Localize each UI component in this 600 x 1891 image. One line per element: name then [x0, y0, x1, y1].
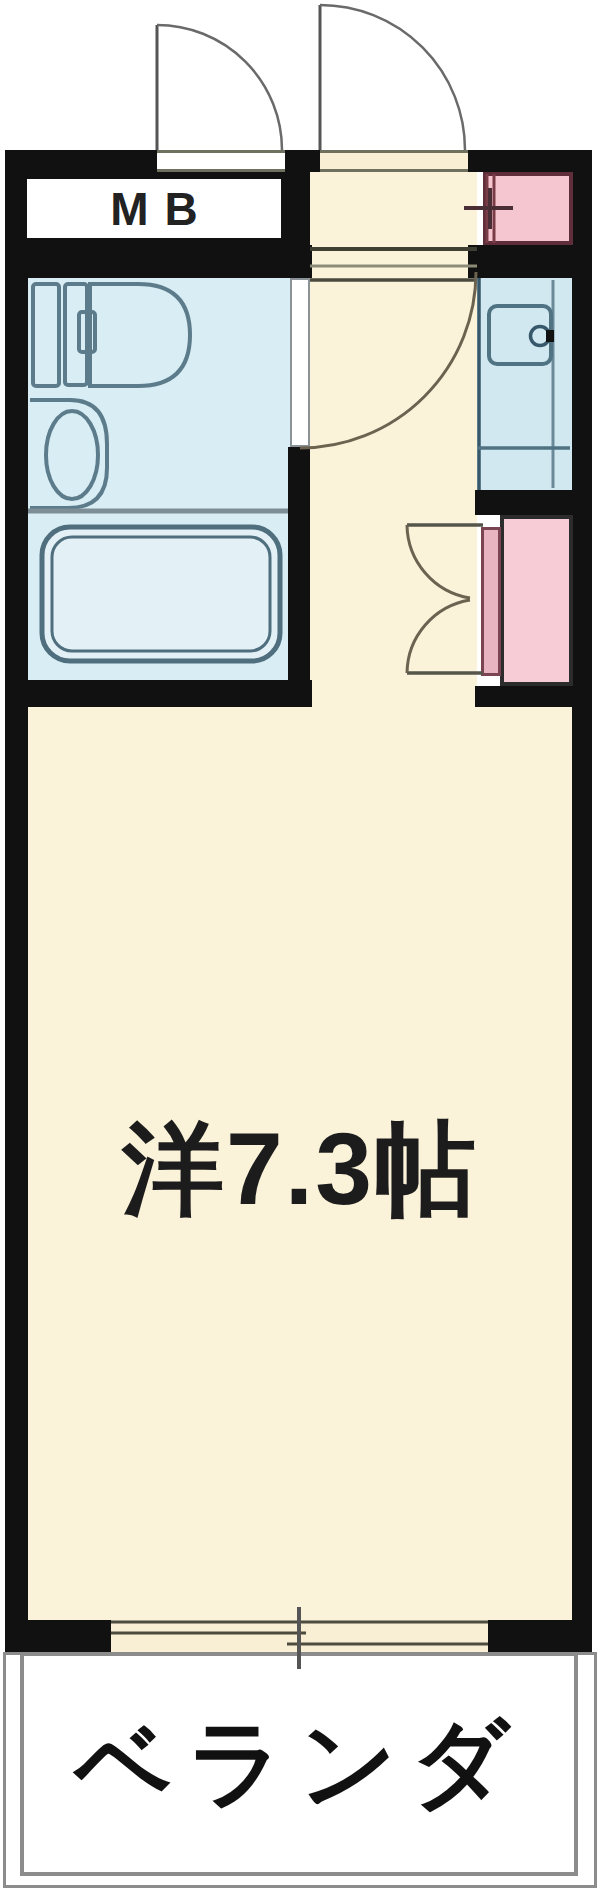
- wall-window-right-corner: [488, 1620, 592, 1652]
- wall-meterbox-right: [288, 172, 310, 245]
- main-room-label: 洋7.3帖: [28, 1102, 572, 1239]
- bathroom-unit: [28, 278, 290, 680]
- closet: [500, 515, 573, 686]
- wall-below-pipespace: [468, 245, 592, 278]
- meterbox-door-opening: [157, 150, 285, 172]
- wall-below-closet: [475, 686, 592, 707]
- wall-window-left-corner: [5, 1620, 111, 1652]
- balcony-label: ベランダ: [20, 1700, 578, 1830]
- wall-top-middle: [285, 150, 320, 172]
- pipe-space: [483, 172, 573, 245]
- wall-left: [5, 150, 28, 1652]
- kitchen-counter: [477, 278, 572, 490]
- wall-bathroom-right: [288, 447, 310, 680]
- entrance-door-opening: [320, 150, 468, 172]
- meterbox-door-swing-icon: [157, 25, 282, 150]
- wall-below-kitchen: [475, 490, 592, 515]
- bathroom-door-leaf: [290, 278, 310, 447]
- window-band: [111, 1620, 488, 1652]
- wall-top-left: [5, 150, 157, 172]
- entrance-door-swing-icon: [320, 5, 465, 150]
- closet-door-panel: [481, 527, 501, 676]
- wall-top-right: [468, 150, 592, 172]
- meter-box: MB: [20, 172, 288, 245]
- entrance-hallway: [310, 172, 477, 707]
- wall-right: [572, 150, 592, 1652]
- wall-below-meterbox: [5, 245, 312, 278]
- wall-below-bathroom: [5, 680, 312, 707]
- meter-box-label: MB: [94, 182, 214, 236]
- floor-plan: MB: [0, 0, 600, 1891]
